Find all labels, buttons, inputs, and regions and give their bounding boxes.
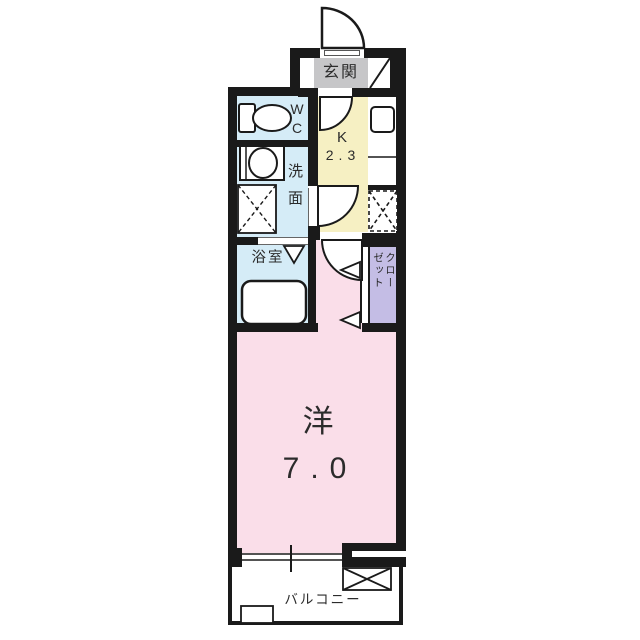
- closet-label: クローゼット: [370, 252, 396, 296]
- entrance-bottom-wall-right: [352, 88, 396, 97]
- balcony-bottom-wall: [228, 621, 403, 625]
- closet-bottom-wall: [362, 323, 406, 332]
- kitchen-counter: [368, 96, 396, 185]
- right-bar-window-slit: [352, 551, 406, 557]
- wc-kitchen-wall: [308, 96, 318, 186]
- room-bottom-left-stub: [228, 548, 242, 567]
- entrance-kitchen-doorway: [318, 88, 352, 97]
- balcony-label: バルコニー: [266, 592, 380, 608]
- right-wall: [396, 48, 406, 567]
- bathroom-label: 浴室: [242, 250, 294, 267]
- washroom-label: 洗面: [287, 158, 304, 212]
- kitchen-size-label: 2.3: [315, 147, 371, 163]
- room-size-label: 7.0: [270, 452, 370, 487]
- balcony-right-wall: [399, 567, 403, 625]
- kitchen-floor: [318, 96, 368, 232]
- wc-label: WC: [288, 100, 306, 138]
- entrance-door-sill: [324, 50, 360, 56]
- room-label: 洋: [296, 404, 340, 440]
- bathroom-doorway: [258, 237, 308, 245]
- washroom-bathroom-divider: [228, 237, 258, 245]
- washroom-doorway: [308, 188, 318, 226]
- closet-door-strip: [360, 247, 370, 323]
- floor-plan: 玄関 WC 洗面 浴室 K 2.3 クローゼット 洋 7.0 バルコニー: [0, 0, 640, 640]
- western-room-floor: [237, 332, 396, 553]
- entrance-label: 玄関: [312, 64, 370, 82]
- washroom-kitchen-wall-lower: [308, 226, 320, 240]
- entrance-right-chunk: [390, 57, 397, 88]
- bathroom-room-wall: [308, 240, 316, 332]
- refrigerator-space-symbol: [369, 191, 397, 231]
- kitchen-closet-bar: [362, 233, 406, 247]
- wc-washroom-divider: [228, 140, 308, 147]
- balcony-left-wall: [228, 567, 232, 625]
- kitchen-room-doorway: [320, 232, 362, 241]
- kitchen-label: K: [331, 129, 353, 146]
- bathroom-bottom-wall: [228, 323, 318, 332]
- counter-end-wall: [368, 185, 396, 190]
- entrance-door-arc-icon: [322, 8, 364, 48]
- wc-top-wall: [228, 87, 298, 96]
